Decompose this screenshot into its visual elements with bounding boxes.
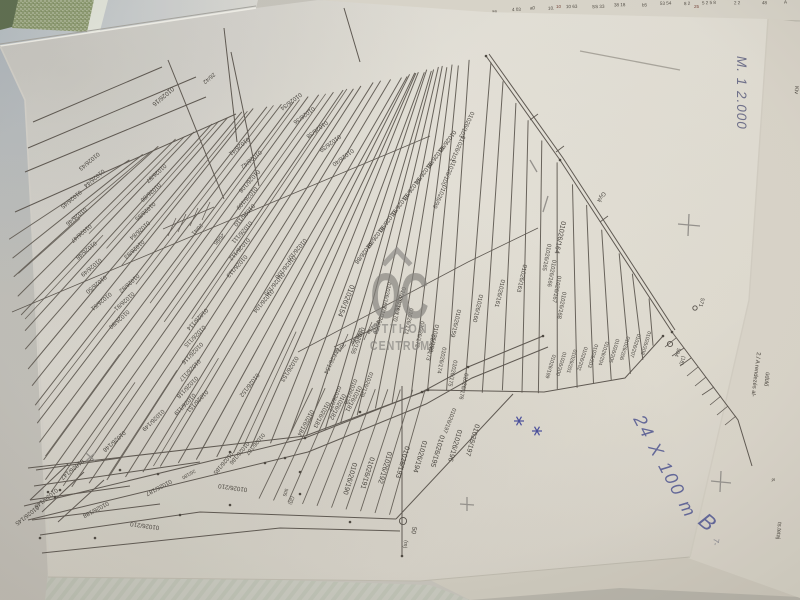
- svg-text:M. 1 2.000: M. 1 2.000: [734, 56, 749, 130]
